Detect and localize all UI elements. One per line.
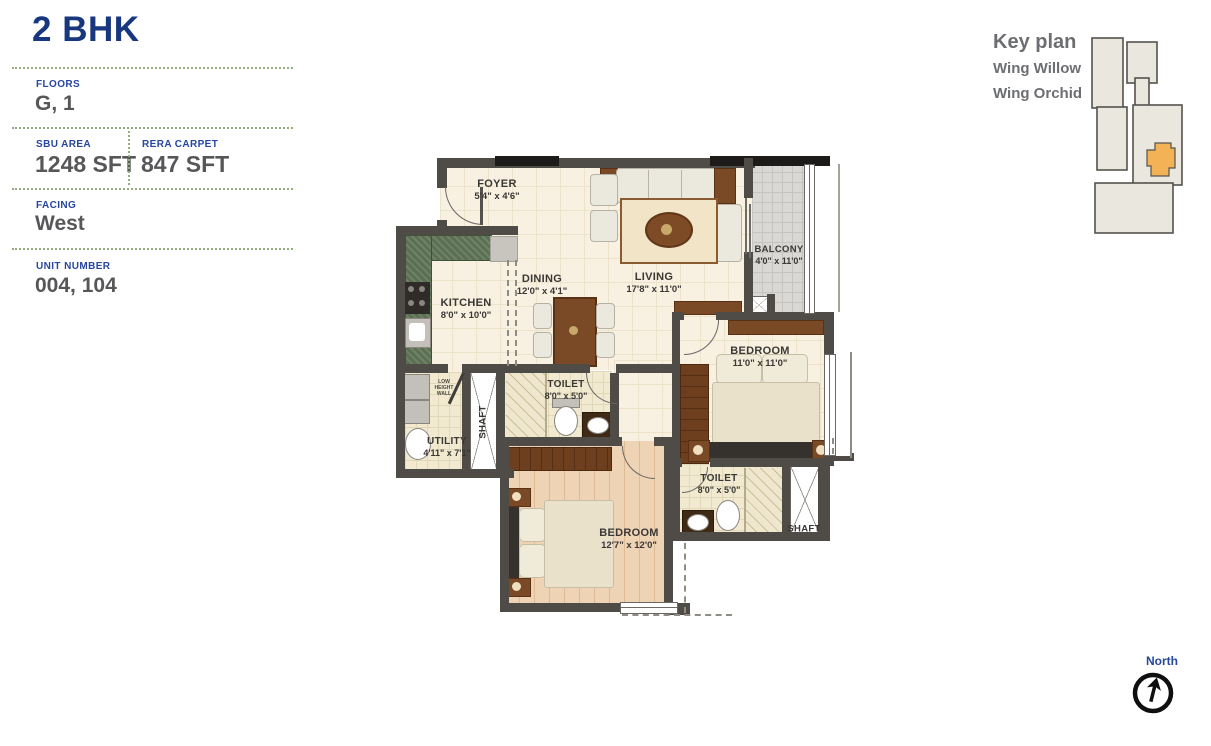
room-label-kitchen: KITCHEN 8'0" x 10'0" — [441, 297, 492, 321]
unit-number-value: 004, 104 — [35, 274, 117, 298]
low-height-wall-note: LOW HEIGHT WALL — [430, 379, 458, 397]
stove-burner — [419, 300, 425, 306]
washbasin — [587, 417, 609, 434]
brochure-page: 2 BHK FLOORS G, 1 SBU AREA 1248 SFT RERA… — [0, 0, 1211, 746]
sbu-area-value: 1248 SFT — [35, 151, 136, 178]
wc — [716, 500, 740, 531]
dresser — [728, 320, 824, 335]
divider — [128, 131, 130, 185]
wall — [437, 158, 447, 188]
room-label-bedroom-1: BEDROOM 11'0" x 11'0" — [730, 345, 790, 369]
room-label-shaft-2: SHAFT — [787, 524, 820, 535]
divider — [12, 67, 293, 69]
utility-counter — [403, 400, 430, 424]
key-plan-wing-1: Wing Willow — [993, 60, 1081, 77]
bed-bench — [710, 442, 818, 458]
wall — [462, 364, 590, 373]
wall-lintel — [495, 156, 559, 166]
floors-value: G, 1 — [35, 92, 75, 116]
wall — [824, 312, 834, 356]
bedroom-2-window — [620, 602, 678, 614]
divider — [12, 248, 293, 250]
wall — [710, 458, 830, 467]
bedroom-1-window — [824, 354, 836, 456]
room-label-shaft-1: SHAFT — [478, 405, 489, 438]
room-label-balcony: BALCONY 4'0" x 11'0" — [754, 244, 803, 266]
dining-chair — [596, 332, 615, 358]
shower-area — [746, 468, 782, 532]
stove-burner — [408, 286, 414, 292]
sill-line — [850, 352, 852, 458]
room-label-bedroom-2: BEDROOM 12'7" x 12'0" — [599, 527, 659, 551]
north-arrow-icon — [1130, 670, 1176, 716]
facing-value: West — [35, 212, 85, 236]
dining-chair — [533, 303, 552, 329]
washing-machine — [403, 374, 430, 400]
balcony-window — [804, 164, 815, 314]
sliding-door — [745, 198, 747, 254]
wall — [672, 466, 680, 540]
wall — [500, 437, 622, 446]
sofa-cushion-seam — [681, 170, 682, 198]
room-label-living: LIVING 17'8" x 11'0" — [626, 271, 681, 295]
room-label-foyer: FOYER 5'4" x 4'6" — [474, 178, 519, 202]
shower-area — [506, 373, 546, 437]
pillow — [519, 544, 546, 578]
open-boundary — [507, 260, 509, 366]
sliding-door — [749, 204, 751, 258]
wall — [396, 226, 405, 478]
armchair — [590, 174, 618, 206]
shower-partition — [744, 468, 746, 532]
wall — [672, 312, 680, 460]
north-label: North — [1146, 654, 1178, 668]
room-label-toilet-1: TOILET 8'0" x 5'0" — [545, 379, 588, 401]
key-plan-title: Key plan — [993, 31, 1076, 54]
wall — [437, 158, 755, 168]
divider — [12, 127, 293, 129]
stove-burner — [408, 300, 414, 306]
projection-line — [622, 614, 732, 616]
wall — [462, 364, 470, 478]
balcony-ledge — [812, 164, 838, 312]
dining-table-decor — [569, 326, 578, 335]
wall — [767, 294, 775, 314]
projection-line — [684, 543, 686, 613]
wc — [554, 406, 578, 436]
wall — [396, 226, 518, 235]
divider — [12, 188, 293, 190]
washbasin — [687, 514, 709, 531]
wall — [744, 252, 753, 314]
floor-balcony — [752, 162, 806, 312]
wall — [744, 158, 753, 198]
lamp — [512, 582, 521, 591]
kitchen-sink-basin — [409, 323, 425, 341]
sofa-cushion-seam — [648, 170, 649, 198]
dining-chair — [533, 332, 552, 358]
sbu-area-label: SBU AREA — [36, 139, 91, 150]
ledge-line — [838, 164, 840, 312]
pillow — [519, 508, 546, 542]
wall — [500, 603, 622, 612]
wardrobe — [508, 447, 612, 471]
floors-label: FLOORS — [36, 79, 80, 90]
key-plan-wing-2: Wing Orchid — [993, 85, 1082, 102]
projection-line — [832, 438, 834, 454]
room-label-utility: UTILITY 4'11" x 7'1" — [423, 436, 470, 458]
coffee-table-decor — [661, 224, 672, 235]
facing-label: FACING — [36, 200, 76, 211]
stove-burner — [419, 286, 425, 292]
rera-carpet-value: 847 SFT — [141, 151, 229, 178]
key-plan-footprint — [1085, 28, 1187, 238]
lamp — [512, 492, 521, 501]
lamp — [693, 445, 703, 455]
wall — [500, 437, 509, 612]
kitchen-cabinet — [490, 236, 518, 262]
room-label-dining: DINING 12'0" x 4'1" — [517, 273, 568, 297]
bed — [712, 382, 820, 444]
rera-carpet-label: RERA CARPET — [142, 139, 218, 150]
wall — [396, 364, 448, 373]
armchair — [590, 210, 618, 242]
wall — [616, 364, 676, 373]
unit-number-label: UNIT NUMBER — [36, 261, 110, 272]
page-title: 2 BHK — [32, 10, 140, 50]
dining-chair — [596, 303, 615, 329]
room-label-toilet-2: TOILET 8'0" x 5'0" — [698, 473, 741, 495]
